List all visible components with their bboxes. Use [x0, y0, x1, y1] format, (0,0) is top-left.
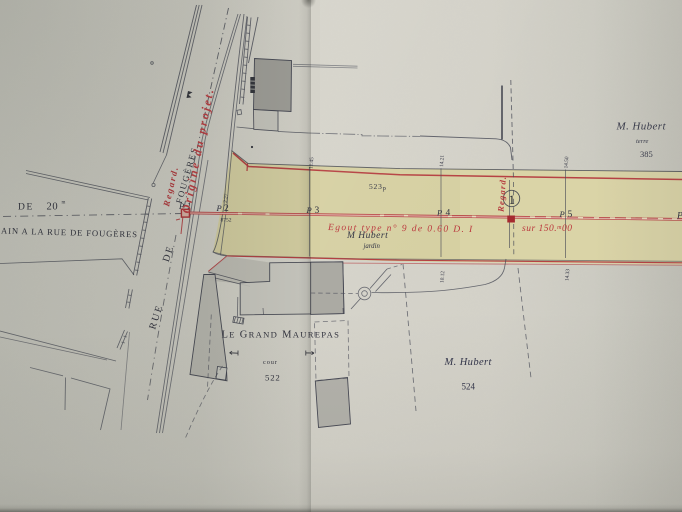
svg-text:14.33: 14.33 [565, 268, 572, 281]
svg-text:10.12: 10.12 [440, 270, 447, 283]
svg-text:3: 3 [315, 206, 320, 216]
